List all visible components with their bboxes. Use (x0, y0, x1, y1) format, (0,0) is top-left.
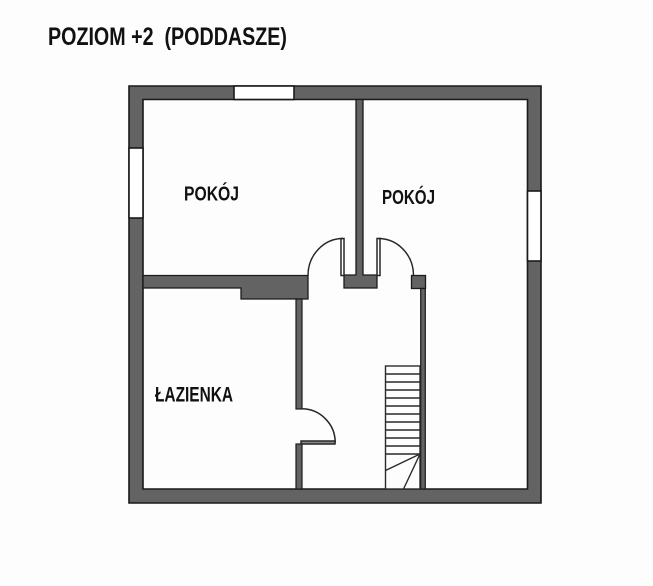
svg-text:POZIOM +2 (PODDASZE): POZIOM +2 (PODDASZE) (48, 23, 287, 51)
svg-text:POKÓJ: POKÓJ (382, 185, 435, 209)
svg-text:POKÓJ: POKÓJ (184, 182, 239, 206)
svg-text:ŁAZIENKA: ŁAZIENKA (155, 383, 233, 407)
